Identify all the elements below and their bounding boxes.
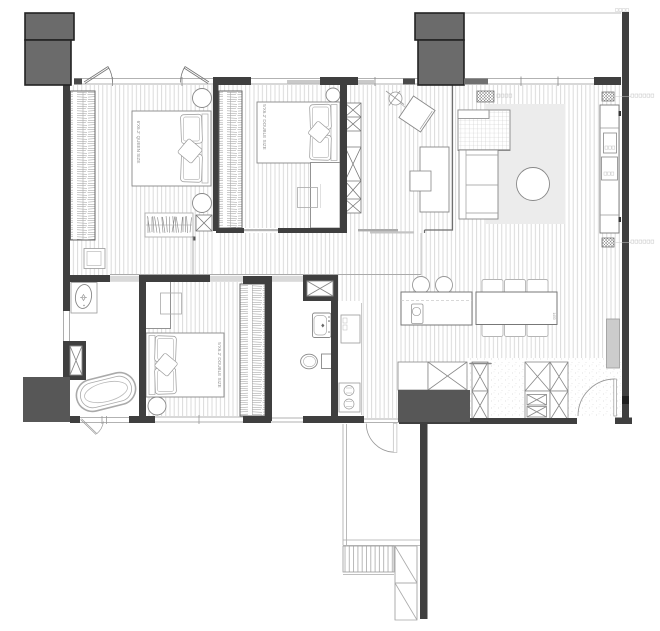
svg-text:5'X6.2' DOUBLE SIZE: 5'X6.2' DOUBLE SIZE <box>262 104 267 149</box>
svg-text:5'X6.2' DOUBLE SIZE: 5'X6.2' DOUBLE SIZE <box>217 342 222 387</box>
svg-text:6'X6.2' QUEEN SIZE: 6'X6.2' QUEEN SIZE <box>136 121 141 164</box>
svg-text:1400: 1400 <box>552 312 556 319</box>
